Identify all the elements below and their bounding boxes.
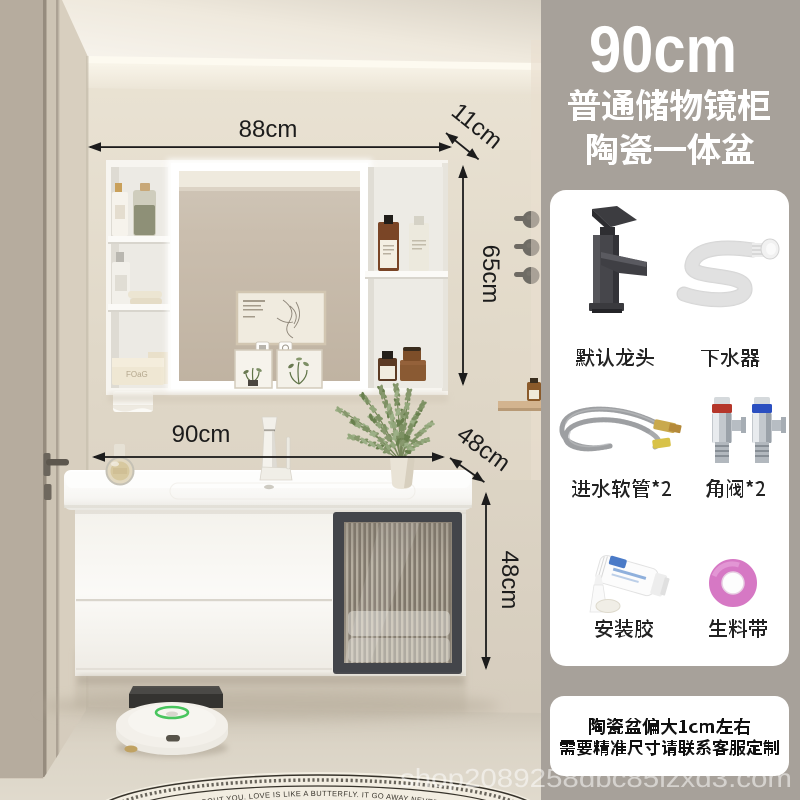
svg-text:48cm: 48cm	[496, 551, 523, 610]
svg-text:FOaG: FOaG	[126, 370, 148, 379]
svg-text:shop2089258dbc85lzxd3.com: shop2089258dbc85lzxd3.com	[400, 763, 792, 793]
svg-text:90cm: 90cm	[172, 421, 231, 448]
svg-text:88cm: 88cm	[239, 116, 298, 143]
svg-text:65cm: 65cm	[477, 245, 504, 304]
svg-text:90cm: 90cm	[589, 12, 737, 86]
